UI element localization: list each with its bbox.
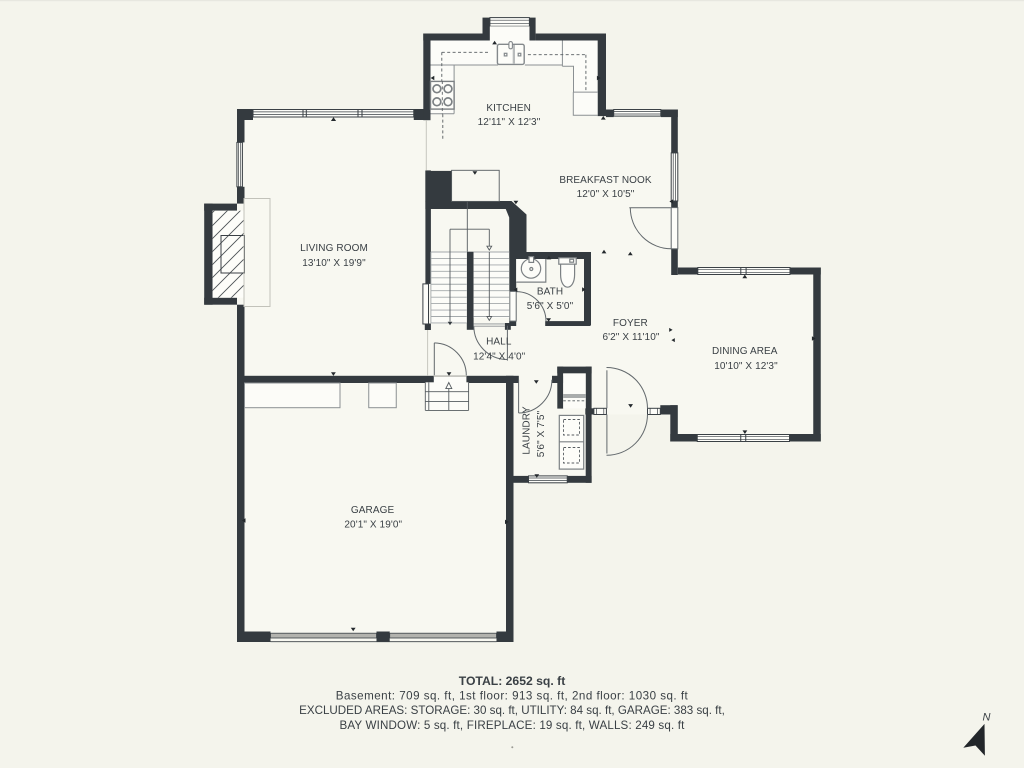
svg-text:10'10" X 12'3": 10'10" X 12'3"	[714, 361, 778, 372]
svg-text:EXCLUDED AREAS: STORAGE: 30 sq: EXCLUDED AREAS: STORAGE: 30 sq. ft, UTIL…	[299, 704, 725, 717]
svg-text:13'10" X 19'9": 13'10" X 19'9"	[302, 258, 366, 269]
svg-text:12'4" X 4'0": 12'4" X 4'0"	[473, 352, 526, 363]
svg-text:DINING AREA: DINING AREA	[712, 346, 778, 357]
svg-text:GARAGE: GARAGE	[351, 505, 395, 516]
svg-text:12'11" X 12'3": 12'11" X 12'3"	[478, 117, 541, 128]
svg-text:20'1" X 19'0": 20'1" X 19'0"	[344, 520, 402, 531]
svg-text:6'2" X 11'10": 6'2" X 11'10"	[602, 332, 659, 343]
svg-text:5'6" X 7'5": 5'6" X 7'5"	[536, 410, 547, 457]
svg-text:BATH: BATH	[537, 287, 563, 298]
svg-text:KITCHEN: KITCHEN	[486, 103, 531, 114]
svg-text:BREAKFAST NOOK: BREAKFAST NOOK	[559, 175, 652, 186]
svg-text:12'0" X 10'5": 12'0" X 10'5"	[577, 189, 635, 200]
svg-text:5'6" X 5'0": 5'6" X 5'0"	[527, 301, 574, 312]
svg-text:Basement: 709 sq. ft, 1st floo: Basement: 709 sq. ft, 1st floor: 913 sq.…	[336, 690, 689, 703]
svg-text:FOYER: FOYER	[613, 318, 648, 329]
svg-text:TOTAL: 2652 sq. ft: TOTAL: 2652 sq. ft	[459, 674, 566, 688]
svg-text:N: N	[983, 711, 991, 723]
svg-text:LAUNDRY: LAUNDRY	[522, 406, 533, 455]
svg-text:LIVING ROOM: LIVING ROOM	[300, 243, 368, 254]
svg-text:BAY WINDOW: 5 sq. ft, FIREPLAC: BAY WINDOW: 5 sq. ft, FIREPLACE: 19 sq. …	[339, 719, 685, 732]
svg-text:HALL: HALL	[486, 337, 512, 348]
